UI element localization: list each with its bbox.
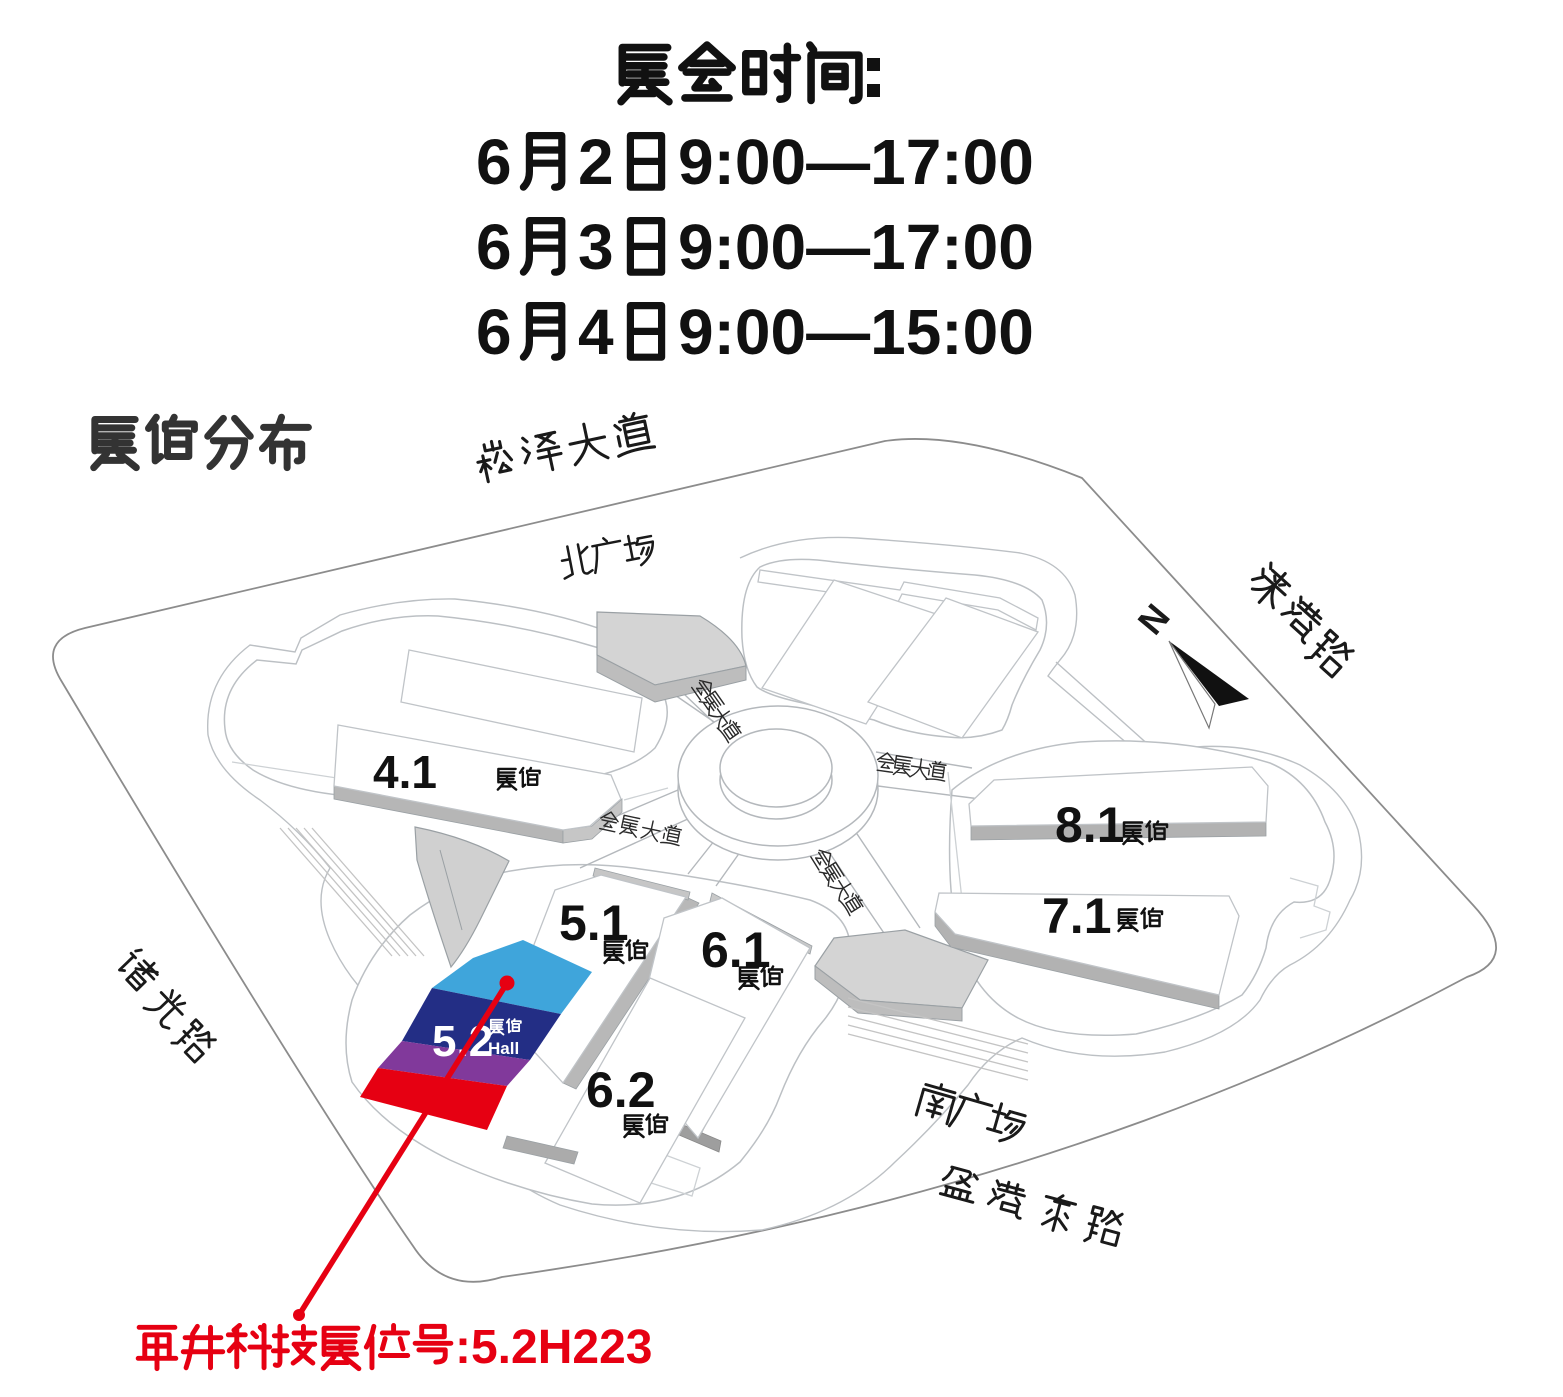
svg-text:7.1: 7.1 — [1042, 888, 1112, 944]
svg-text:6.2: 6.2 — [586, 1062, 656, 1118]
svg-text:8.1: 8.1 — [1055, 797, 1125, 853]
svg-text:9:00—17:00: 9:00—17:00 — [678, 211, 1034, 283]
svg-text:9:00—17:00: 9:00—17:00 — [678, 126, 1034, 198]
svg-text:Hall: Hall — [488, 1039, 519, 1058]
svg-text:2: 2 — [578, 126, 614, 198]
svg-text:6: 6 — [476, 296, 512, 368]
svg-text::5.2H223: :5.2H223 — [455, 1321, 652, 1374]
svg-text:6.1: 6.1 — [701, 922, 771, 978]
svg-text:3: 3 — [578, 211, 614, 283]
svg-text:4.1: 4.1 — [373, 746, 437, 798]
svg-text:6: 6 — [476, 126, 512, 198]
svg-text:4: 4 — [578, 296, 614, 368]
svg-text:9:00—15:00: 9:00—15:00 — [678, 296, 1034, 368]
svg-text:6: 6 — [476, 211, 512, 283]
